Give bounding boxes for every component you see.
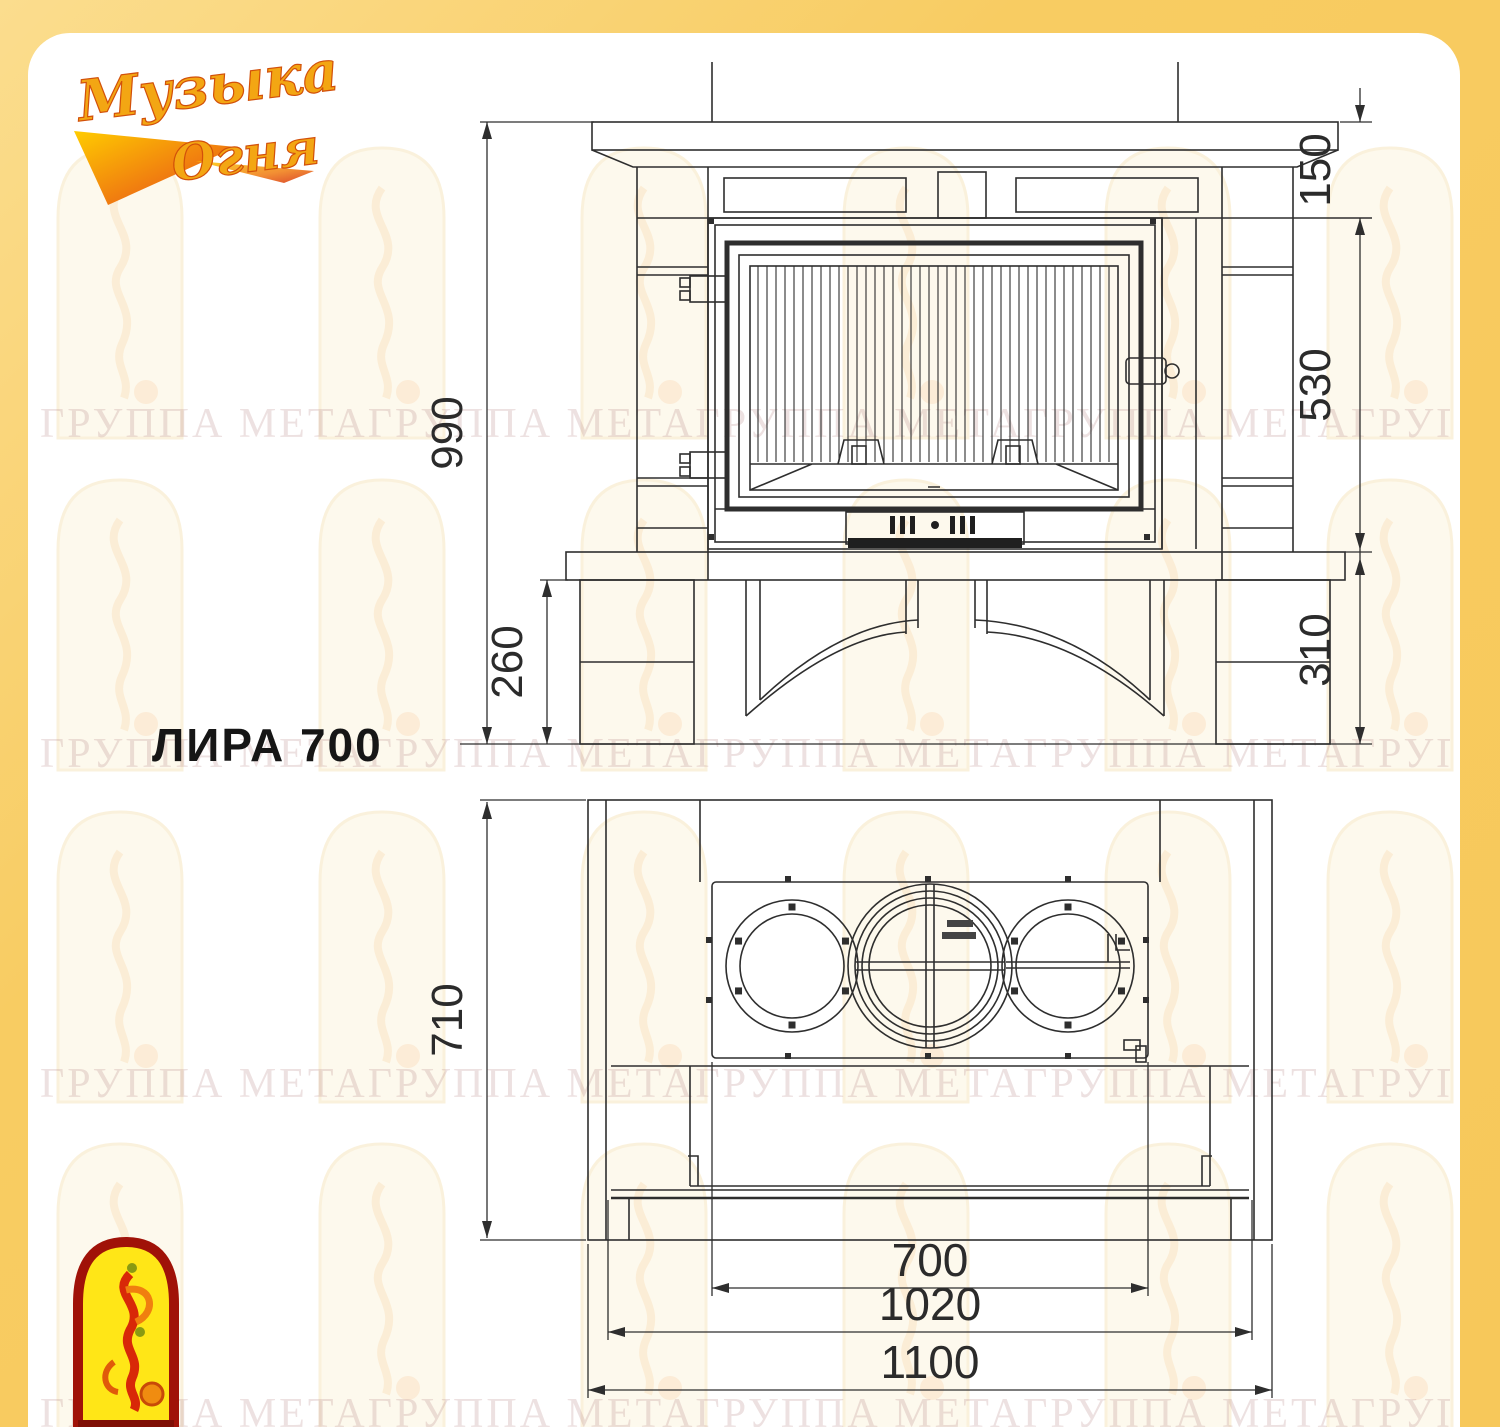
- extension-lines: [460, 122, 1372, 1398]
- dim-label-990: 990: [423, 396, 472, 469]
- dim-label-260: 260: [483, 625, 532, 698]
- flue-circle-right: [1002, 900, 1134, 1032]
- flue-stamp-marks: [942, 920, 976, 939]
- firebird-logo: [70, 1232, 182, 1427]
- dimension-lines: [460, 88, 1372, 1398]
- firebox-floor: [750, 440, 1118, 490]
- door-grill: [758, 266, 1109, 462]
- flue-circle-left: [726, 900, 858, 1032]
- plan-inner-walls: [606, 800, 1254, 1240]
- dim-label-150: 150: [1291, 133, 1340, 206]
- dim-label-310: 310: [1291, 613, 1340, 686]
- model-label: ЛИРА 700: [152, 718, 383, 772]
- dimension-arrows: [482, 105, 1365, 1395]
- dim-label-1020: 1020: [879, 1278, 981, 1330]
- base-legs: [580, 580, 1330, 744]
- flue-circle-center: [848, 884, 1012, 1048]
- page: ГРУППА МЕТАГРУППА МЕТАГРУППА МЕТАГРУППА …: [0, 0, 1500, 1427]
- plan-apron: [611, 1040, 1249, 1240]
- base-arch: [746, 580, 1164, 716]
- firebox-door: [727, 243, 1141, 509]
- technical-drawing: 990 260 150 530 310 710 700 1020 1100: [0, 0, 1500, 1427]
- hearth-shelf: [566, 552, 1345, 580]
- front-elevation-view: [566, 62, 1372, 744]
- frieze-panels: [724, 172, 1198, 218]
- dim-label-530: 530: [1291, 348, 1340, 421]
- bolt-dots: [706, 218, 1156, 1059]
- dim-label-710: 710: [423, 983, 472, 1056]
- dim-label-1100: 1100: [881, 1336, 980, 1388]
- door-handle: [1126, 358, 1179, 384]
- door-hinges: [680, 276, 728, 478]
- dimension-labels: 990 260 150 530 310 710 700 1020 1100: [423, 133, 1340, 1388]
- plan-view: [588, 800, 1272, 1240]
- mantel-shelf: [592, 122, 1338, 167]
- firebird-sun: [141, 1383, 163, 1405]
